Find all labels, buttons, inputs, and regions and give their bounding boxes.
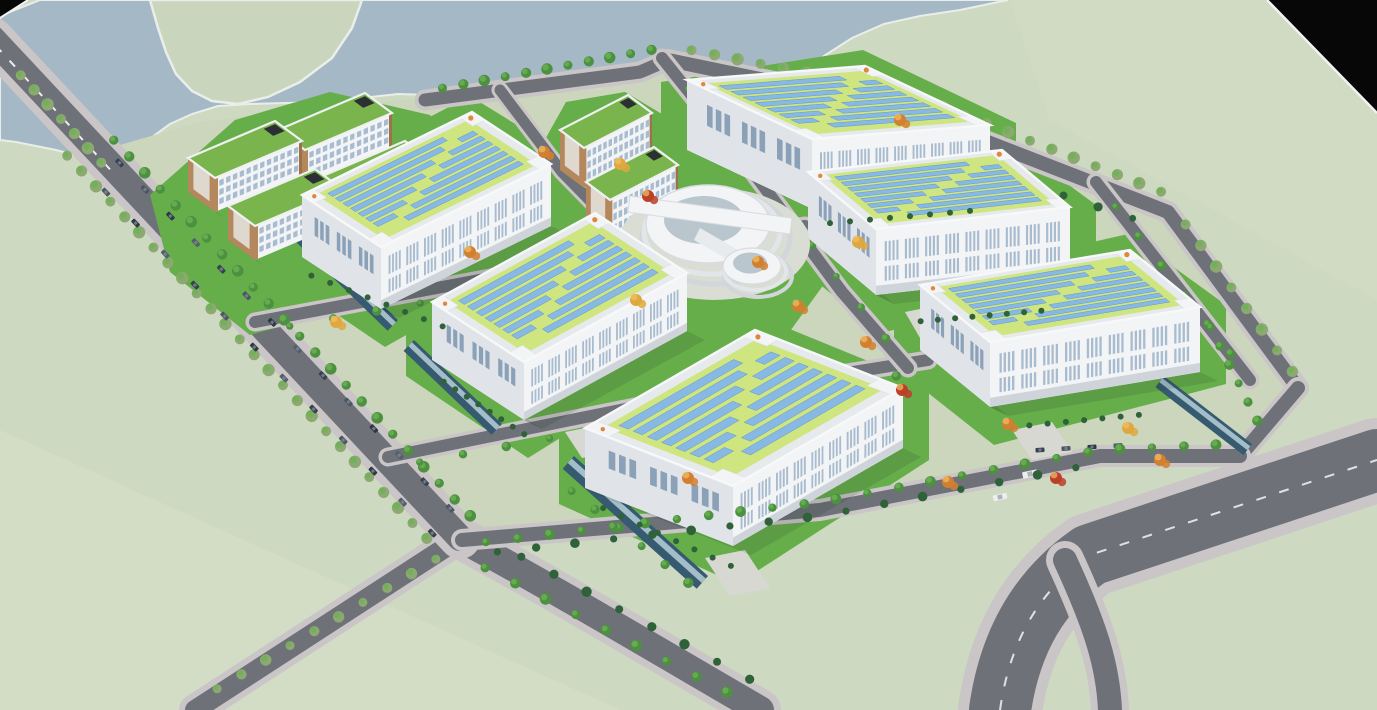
autumn-canopy bbox=[860, 242, 868, 250]
tree bbox=[1072, 464, 1079, 471]
tree bbox=[1004, 311, 1010, 317]
window bbox=[653, 302, 655, 320]
window bbox=[1058, 246, 1060, 261]
vehicle-roof bbox=[1038, 448, 1041, 451]
tree-highlight bbox=[322, 427, 328, 433]
window bbox=[531, 369, 533, 387]
tree bbox=[1045, 421, 1051, 427]
tree-highlight bbox=[287, 323, 291, 327]
window bbox=[592, 336, 594, 354]
window bbox=[364, 250, 368, 271]
window bbox=[410, 268, 412, 283]
tree-highlight bbox=[358, 397, 364, 403]
window bbox=[779, 470, 781, 489]
window bbox=[320, 221, 324, 242]
tree-highlight bbox=[83, 143, 90, 150]
tree bbox=[995, 478, 1003, 486]
window bbox=[795, 146, 801, 170]
window bbox=[606, 328, 608, 346]
window bbox=[850, 452, 852, 466]
window bbox=[1043, 346, 1045, 366]
window bbox=[479, 345, 483, 365]
window bbox=[822, 469, 824, 483]
window bbox=[548, 359, 550, 377]
tree-highlight bbox=[91, 181, 98, 188]
window bbox=[643, 308, 645, 326]
window bbox=[565, 350, 567, 368]
window bbox=[1006, 227, 1008, 247]
window bbox=[463, 242, 465, 257]
window bbox=[1030, 250, 1032, 265]
tree-highlight bbox=[439, 84, 444, 89]
tree bbox=[510, 424, 516, 430]
autumn-canopy bbox=[622, 164, 630, 172]
tree-highlight bbox=[564, 61, 569, 66]
tree bbox=[610, 535, 617, 542]
window bbox=[434, 256, 436, 271]
tree-highlight bbox=[214, 685, 219, 690]
window bbox=[406, 270, 408, 285]
window bbox=[609, 348, 611, 362]
window bbox=[990, 254, 992, 269]
tree-highlight bbox=[383, 584, 389, 590]
window bbox=[636, 333, 638, 347]
tree-highlight bbox=[1273, 346, 1279, 352]
window bbox=[657, 322, 659, 336]
tree bbox=[581, 587, 591, 597]
autumn-highlight bbox=[331, 316, 338, 323]
tree-highlight bbox=[417, 459, 421, 463]
window bbox=[777, 138, 783, 162]
tree bbox=[1021, 309, 1027, 315]
tree-highlight bbox=[647, 46, 653, 52]
window bbox=[829, 464, 831, 478]
tree bbox=[402, 309, 408, 315]
window bbox=[1047, 345, 1049, 365]
tree bbox=[441, 379, 447, 385]
autumn-highlight bbox=[1051, 472, 1058, 479]
window bbox=[1152, 352, 1154, 367]
tree-highlight bbox=[1257, 324, 1264, 331]
roof-access-marker bbox=[1124, 252, 1129, 257]
window bbox=[937, 260, 939, 275]
window bbox=[511, 366, 515, 386]
window bbox=[538, 365, 540, 383]
roof-access-marker bbox=[468, 115, 473, 120]
window bbox=[555, 356, 557, 374]
window bbox=[626, 317, 628, 335]
tree bbox=[1038, 308, 1044, 314]
window bbox=[540, 181, 542, 201]
tree-highlight bbox=[1113, 170, 1119, 176]
window bbox=[702, 487, 709, 508]
industrial-park-rendering bbox=[0, 0, 1377, 710]
window bbox=[575, 345, 577, 363]
tree-highlight bbox=[892, 372, 897, 377]
window bbox=[424, 261, 426, 276]
window bbox=[1143, 354, 1145, 369]
window bbox=[980, 348, 983, 370]
window bbox=[783, 491, 785, 505]
window bbox=[417, 265, 419, 280]
window bbox=[956, 328, 959, 350]
window bbox=[650, 304, 652, 322]
window bbox=[1021, 374, 1023, 389]
window bbox=[534, 208, 536, 223]
window bbox=[892, 405, 894, 424]
tree-highlight bbox=[1242, 304, 1248, 310]
window bbox=[1006, 252, 1008, 267]
window bbox=[776, 472, 778, 491]
window bbox=[1183, 347, 1185, 362]
tree-highlight bbox=[172, 201, 178, 207]
window bbox=[674, 313, 676, 327]
window bbox=[929, 261, 931, 276]
window bbox=[616, 322, 618, 340]
window bbox=[410, 245, 412, 265]
window bbox=[975, 344, 978, 366]
autumn-canopy bbox=[546, 152, 554, 160]
window bbox=[892, 428, 894, 442]
window bbox=[905, 239, 907, 259]
window bbox=[833, 462, 835, 476]
tree bbox=[365, 294, 371, 300]
window bbox=[1004, 377, 1006, 392]
tree-highlight bbox=[684, 578, 690, 584]
window bbox=[477, 212, 479, 232]
tree bbox=[726, 522, 733, 529]
tree-highlight bbox=[722, 687, 728, 693]
window bbox=[1152, 328, 1154, 348]
tree-highlight bbox=[422, 534, 428, 540]
window bbox=[712, 491, 719, 512]
window bbox=[1131, 331, 1133, 351]
window bbox=[459, 220, 461, 240]
window bbox=[1139, 355, 1141, 370]
window bbox=[765, 478, 767, 497]
window bbox=[1012, 351, 1014, 371]
tree bbox=[887, 215, 893, 221]
window bbox=[586, 361, 588, 375]
window bbox=[1157, 327, 1159, 347]
window bbox=[633, 335, 635, 349]
tree bbox=[957, 486, 964, 493]
window bbox=[1017, 226, 1019, 246]
window bbox=[896, 265, 898, 280]
window bbox=[1026, 225, 1028, 245]
window bbox=[1056, 368, 1058, 383]
window bbox=[572, 347, 574, 365]
pilaster bbox=[299, 141, 302, 176]
window bbox=[484, 232, 486, 247]
window bbox=[531, 391, 533, 405]
window bbox=[485, 350, 489, 370]
window bbox=[833, 440, 835, 459]
window bbox=[886, 409, 888, 428]
window bbox=[786, 466, 788, 485]
tree-highlight bbox=[307, 411, 314, 418]
window bbox=[961, 332, 964, 354]
window bbox=[1000, 353, 1002, 373]
window bbox=[1165, 326, 1167, 346]
tree-highlight bbox=[436, 479, 441, 484]
window bbox=[606, 350, 608, 364]
window bbox=[1131, 356, 1133, 371]
window bbox=[498, 225, 500, 240]
window bbox=[801, 458, 803, 477]
tree-highlight bbox=[568, 488, 572, 492]
window bbox=[847, 454, 849, 468]
window bbox=[1047, 370, 1049, 385]
tree-highlight bbox=[393, 502, 400, 509]
window bbox=[986, 255, 988, 270]
tree-highlight bbox=[541, 594, 547, 600]
tree bbox=[440, 323, 446, 329]
window bbox=[1091, 363, 1093, 378]
window bbox=[751, 487, 753, 506]
window bbox=[516, 193, 518, 213]
window bbox=[643, 330, 645, 344]
tree-highlight bbox=[63, 151, 69, 157]
window bbox=[741, 515, 743, 529]
autumn-highlight bbox=[465, 246, 472, 253]
tree bbox=[947, 210, 953, 216]
window bbox=[941, 316, 944, 338]
tree-highlight bbox=[705, 511, 710, 516]
tree-highlight bbox=[663, 657, 668, 662]
tree-highlight bbox=[710, 50, 716, 56]
tree-highlight bbox=[334, 612, 340, 618]
window bbox=[473, 341, 477, 361]
window bbox=[565, 372, 567, 386]
autumn-highlight bbox=[943, 476, 950, 483]
window bbox=[1157, 352, 1159, 367]
window bbox=[1113, 359, 1115, 374]
window bbox=[406, 246, 408, 266]
window bbox=[505, 362, 509, 382]
window bbox=[677, 311, 679, 325]
window bbox=[1139, 330, 1141, 350]
tree-highlight bbox=[1196, 241, 1202, 247]
window bbox=[864, 421, 866, 440]
tree bbox=[1099, 415, 1105, 421]
tree-highlight bbox=[1158, 261, 1163, 266]
window bbox=[661, 471, 668, 492]
tree-highlight bbox=[1069, 152, 1076, 159]
tree-highlight bbox=[572, 611, 577, 616]
window bbox=[1065, 367, 1067, 382]
autumn-canopy bbox=[338, 322, 346, 330]
window bbox=[804, 479, 806, 493]
window bbox=[1012, 376, 1014, 391]
window bbox=[1078, 365, 1080, 380]
tree-highlight bbox=[578, 527, 583, 532]
tree-highlight bbox=[250, 283, 255, 288]
window bbox=[392, 277, 394, 292]
pilaster bbox=[389, 113, 392, 148]
window bbox=[348, 239, 352, 260]
window bbox=[512, 218, 514, 233]
tree-highlight bbox=[602, 626, 608, 632]
window bbox=[786, 489, 788, 503]
window bbox=[953, 258, 955, 273]
window bbox=[1099, 336, 1101, 356]
window bbox=[1058, 221, 1060, 241]
window bbox=[1026, 373, 1028, 388]
window bbox=[953, 233, 955, 253]
window bbox=[1187, 347, 1189, 362]
window bbox=[1095, 362, 1097, 377]
tree bbox=[1063, 419, 1069, 425]
pilaster bbox=[255, 225, 258, 260]
autumn-highlight bbox=[861, 336, 868, 343]
window bbox=[1183, 323, 1185, 343]
tree-highlight bbox=[632, 641, 638, 647]
window bbox=[997, 253, 999, 268]
tree-highlight bbox=[187, 217, 193, 223]
tree-highlight bbox=[1113, 204, 1117, 208]
window bbox=[1161, 351, 1163, 366]
tree-highlight bbox=[1227, 349, 1232, 354]
window bbox=[751, 509, 753, 523]
window bbox=[1030, 225, 1032, 245]
roof-access-marker bbox=[312, 194, 316, 198]
tree-highlight bbox=[110, 136, 115, 141]
tree bbox=[880, 500, 888, 508]
window bbox=[558, 354, 560, 372]
tree-highlight bbox=[30, 85, 36, 91]
tree bbox=[679, 639, 689, 649]
window bbox=[1174, 349, 1176, 364]
window bbox=[854, 450, 856, 464]
roof-access-marker bbox=[864, 67, 869, 72]
window bbox=[1174, 324, 1176, 344]
tree bbox=[918, 492, 928, 502]
tree bbox=[421, 316, 427, 322]
window bbox=[977, 231, 979, 251]
window bbox=[359, 246, 363, 267]
window bbox=[640, 332, 642, 346]
tree-highlight bbox=[832, 494, 838, 500]
window bbox=[1078, 340, 1080, 360]
tree-highlight bbox=[1157, 187, 1163, 193]
window bbox=[427, 236, 429, 256]
window bbox=[801, 481, 803, 495]
window bbox=[495, 227, 497, 242]
tree-highlight bbox=[237, 670, 243, 676]
autumn-canopy bbox=[690, 478, 698, 486]
window bbox=[758, 505, 760, 519]
window bbox=[589, 337, 591, 355]
tree bbox=[1136, 412, 1142, 418]
window bbox=[973, 231, 975, 251]
window bbox=[530, 186, 532, 206]
window bbox=[677, 289, 679, 307]
tree-highlight bbox=[218, 250, 224, 256]
window bbox=[537, 182, 539, 202]
roof-access-marker bbox=[755, 334, 760, 339]
window bbox=[484, 208, 486, 228]
tree bbox=[517, 553, 525, 561]
window bbox=[470, 215, 472, 235]
window bbox=[670, 293, 672, 311]
tree-highlight bbox=[627, 50, 632, 55]
window bbox=[744, 491, 746, 510]
window bbox=[822, 446, 824, 465]
window bbox=[850, 429, 852, 448]
window bbox=[481, 210, 483, 230]
tree-highlight bbox=[1116, 445, 1122, 451]
window bbox=[815, 450, 817, 469]
tree-highlight bbox=[542, 64, 548, 70]
tree-highlight bbox=[177, 273, 184, 280]
tree bbox=[673, 538, 679, 544]
window bbox=[399, 250, 401, 269]
autumn-highlight bbox=[643, 190, 650, 197]
tree-highlight bbox=[279, 381, 285, 387]
tree-highlight bbox=[326, 364, 332, 370]
window bbox=[619, 455, 626, 476]
tree bbox=[847, 218, 853, 224]
tree-highlight bbox=[591, 506, 596, 511]
window bbox=[1165, 350, 1167, 365]
window bbox=[417, 241, 419, 261]
window bbox=[1056, 344, 1058, 364]
window bbox=[623, 341, 625, 355]
tree-highlight bbox=[77, 166, 83, 172]
tree-highlight bbox=[674, 516, 679, 521]
tree-highlight bbox=[733, 54, 740, 61]
autumn-canopy bbox=[1162, 460, 1170, 468]
window bbox=[505, 222, 507, 237]
window bbox=[886, 432, 888, 446]
window bbox=[1004, 352, 1006, 372]
tree-highlight bbox=[926, 477, 932, 483]
window bbox=[535, 389, 537, 403]
window bbox=[1087, 363, 1089, 378]
window bbox=[913, 263, 915, 278]
window bbox=[1014, 226, 1016, 246]
tree-highlight bbox=[638, 543, 642, 547]
window bbox=[516, 216, 518, 231]
window bbox=[424, 238, 426, 258]
tree-highlight bbox=[1135, 232, 1140, 237]
window bbox=[540, 204, 542, 219]
tree bbox=[498, 416, 504, 422]
window bbox=[1038, 224, 1040, 244]
window bbox=[758, 482, 760, 501]
tree-highlight bbox=[261, 655, 267, 661]
tree bbox=[745, 675, 754, 684]
window bbox=[1034, 249, 1036, 264]
autumn-highlight bbox=[683, 472, 690, 479]
tree-highlight bbox=[280, 315, 286, 321]
tree-highlight bbox=[1026, 136, 1032, 142]
window bbox=[670, 315, 672, 329]
tree-highlight bbox=[365, 473, 371, 479]
tree bbox=[728, 563, 734, 569]
window bbox=[829, 442, 831, 461]
roof-access-marker bbox=[601, 427, 605, 431]
tree bbox=[637, 522, 643, 528]
tree-highlight bbox=[157, 185, 162, 190]
window bbox=[582, 363, 584, 377]
window bbox=[1034, 347, 1036, 367]
window bbox=[993, 254, 995, 269]
window bbox=[824, 200, 827, 222]
car bbox=[1035, 447, 1044, 452]
tree-highlight bbox=[1212, 440, 1218, 446]
